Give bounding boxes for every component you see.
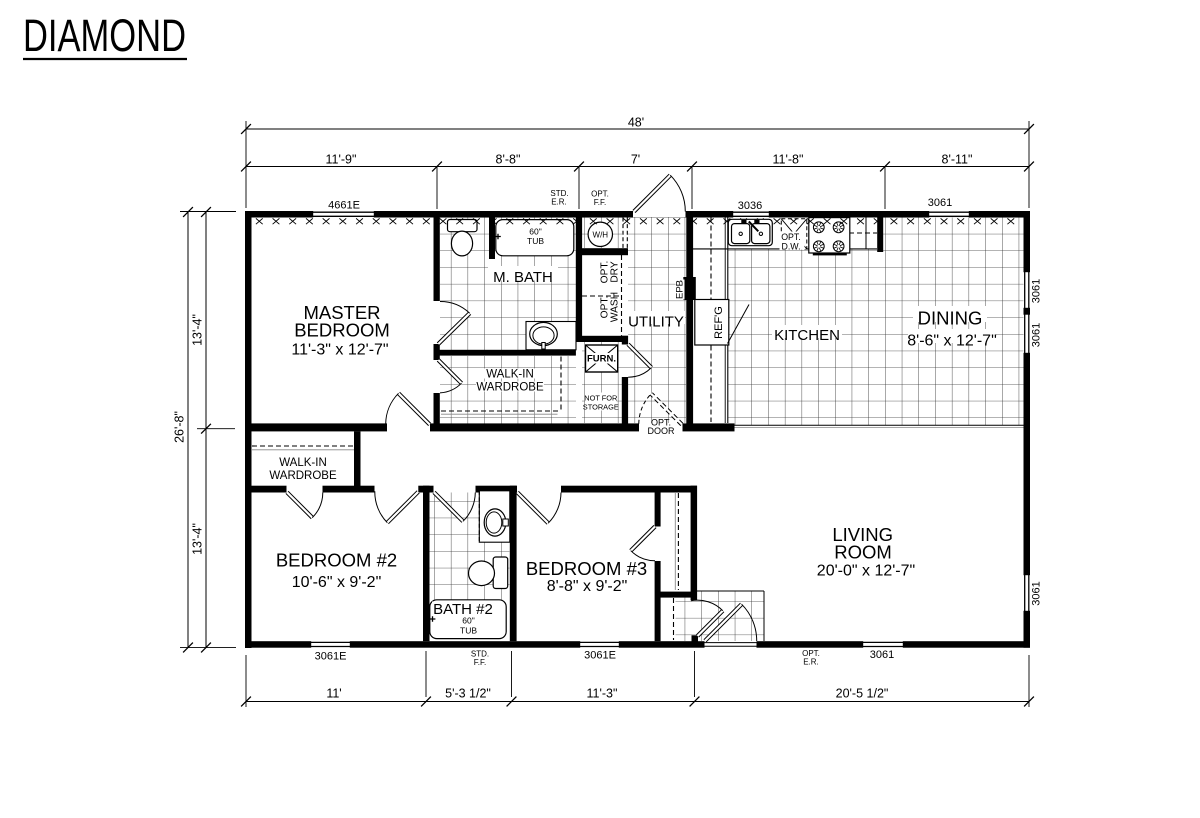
svg-text:E.R.: E.R. bbox=[551, 198, 567, 207]
svg-text:FURN.: FURN. bbox=[587, 354, 616, 365]
svg-text:WARDROBE: WARDROBE bbox=[476, 381, 544, 393]
svg-text:3061: 3061 bbox=[870, 649, 894, 661]
svg-text:F.F.: F.F. bbox=[474, 658, 486, 667]
svg-text:13'-4": 13'-4" bbox=[191, 314, 205, 346]
svg-text:DIAMOND: DIAMOND bbox=[23, 10, 186, 61]
svg-text:11'-3" x 12'-7": 11'-3" x 12'-7" bbox=[291, 342, 388, 359]
svg-text:3061E: 3061E bbox=[584, 650, 616, 662]
svg-text:4661E: 4661E bbox=[328, 200, 360, 212]
svg-text:NOT FOR: NOT FOR bbox=[584, 393, 617, 402]
svg-text:7': 7' bbox=[631, 153, 640, 167]
svg-text:3036: 3036 bbox=[738, 200, 762, 212]
svg-text:DINING: DINING bbox=[918, 308, 983, 329]
svg-text:F.F.: F.F. bbox=[594, 198, 606, 207]
svg-text:STORAGE: STORAGE bbox=[583, 402, 619, 411]
svg-text:48': 48' bbox=[628, 116, 644, 130]
svg-text:11': 11' bbox=[326, 687, 341, 701]
svg-text:3061: 3061 bbox=[1030, 581, 1042, 605]
svg-text:5'-3 1/2": 5'-3 1/2" bbox=[445, 687, 491, 701]
svg-text:DOOR: DOOR bbox=[648, 426, 676, 436]
svg-text:BEDROOM: BEDROOM bbox=[294, 320, 390, 341]
svg-text:60": 60" bbox=[462, 615, 474, 625]
svg-text:TUB: TUB bbox=[460, 625, 477, 635]
svg-text:60": 60" bbox=[529, 226, 541, 236]
svg-text:8'-6" x 12'-7": 8'-6" x 12'-7" bbox=[907, 332, 997, 349]
svg-text:KITCHEN: KITCHEN bbox=[774, 327, 840, 344]
svg-text:EPB: EPB bbox=[675, 280, 686, 299]
svg-text:UTILITY: UTILITY bbox=[628, 314, 684, 331]
svg-text:26'-8": 26'-8" bbox=[173, 411, 187, 443]
svg-text:WASH: WASH bbox=[609, 292, 620, 322]
svg-text:3061: 3061 bbox=[1030, 279, 1042, 303]
svg-text:DRY: DRY bbox=[609, 261, 620, 283]
svg-text:BEDROOM #2: BEDROOM #2 bbox=[276, 550, 397, 571]
svg-text:3061E: 3061E bbox=[315, 651, 347, 663]
svg-text:D.W.: D.W. bbox=[781, 241, 800, 251]
svg-text:20'-5 1/2": 20'-5 1/2" bbox=[836, 687, 889, 701]
svg-text:8'-8": 8'-8" bbox=[496, 153, 521, 167]
svg-text:3061: 3061 bbox=[928, 197, 952, 209]
svg-text:3061: 3061 bbox=[1030, 323, 1042, 347]
svg-text:W/H: W/H bbox=[593, 230, 609, 239]
svg-text:BEDROOM #3: BEDROOM #3 bbox=[526, 558, 647, 579]
svg-text:11'-9": 11'-9" bbox=[326, 153, 357, 167]
svg-text:WALK-IN: WALK-IN bbox=[279, 457, 327, 469]
svg-text:10'-6" x 9'-2": 10'-6" x 9'-2" bbox=[292, 574, 382, 591]
svg-text:TUB: TUB bbox=[527, 236, 544, 246]
svg-text:WARDROBE: WARDROBE bbox=[269, 470, 337, 482]
svg-text:8'-11": 8'-11" bbox=[942, 153, 973, 167]
svg-text:11'-8": 11'-8" bbox=[773, 153, 804, 167]
svg-text:WALK-IN: WALK-IN bbox=[486, 368, 534, 380]
svg-text:13'-4": 13'-4" bbox=[191, 523, 205, 555]
svg-text:M. BATH: M. BATH bbox=[493, 269, 553, 286]
svg-text:ROOM: ROOM bbox=[834, 542, 892, 563]
svg-text:E.R.: E.R. bbox=[803, 658, 819, 667]
svg-text:8'-8" x 9'-2": 8'-8" x 9'-2" bbox=[547, 578, 628, 595]
svg-text:20'-0" x 12'-7": 20'-0" x 12'-7" bbox=[817, 562, 915, 579]
svg-text:11'-3": 11'-3" bbox=[587, 687, 618, 701]
svg-text:REF'G: REF'G bbox=[713, 306, 725, 339]
